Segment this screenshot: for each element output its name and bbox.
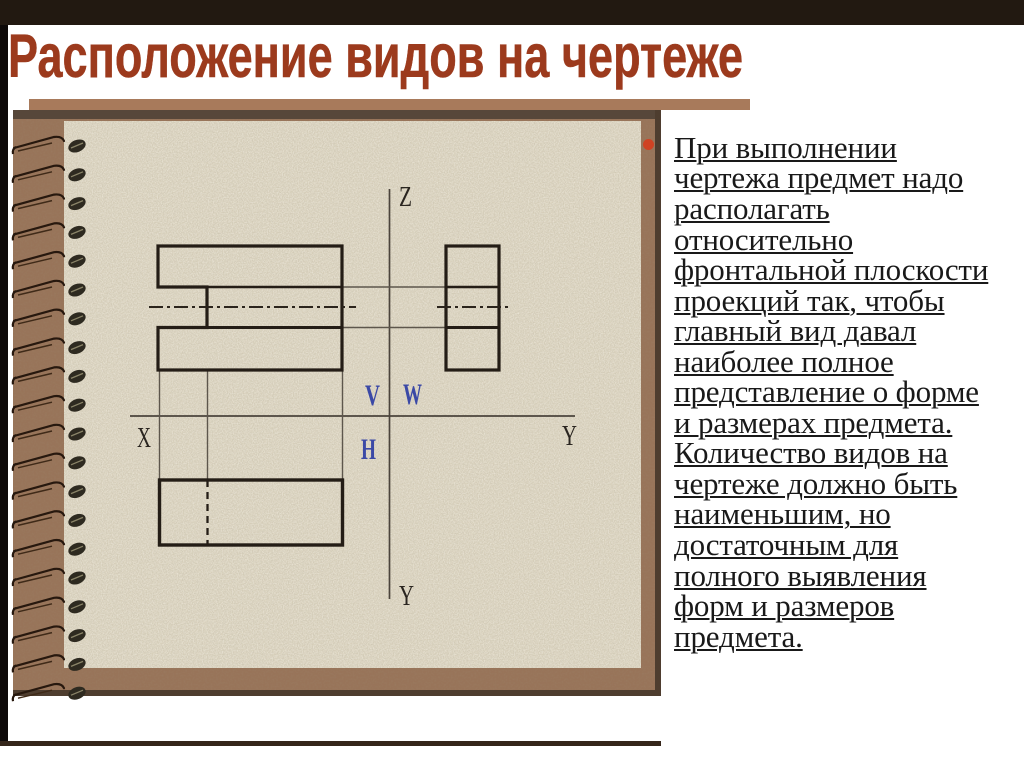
svg-text:Z: Z	[399, 181, 412, 213]
svg-text:W: W	[403, 378, 422, 411]
svg-text:X: X	[137, 422, 151, 454]
svg-text:H: H	[361, 433, 376, 466]
svg-text:V: V	[365, 379, 380, 412]
svg-text:Y: Y	[399, 580, 414, 612]
svg-text:Y: Y	[562, 420, 577, 452]
